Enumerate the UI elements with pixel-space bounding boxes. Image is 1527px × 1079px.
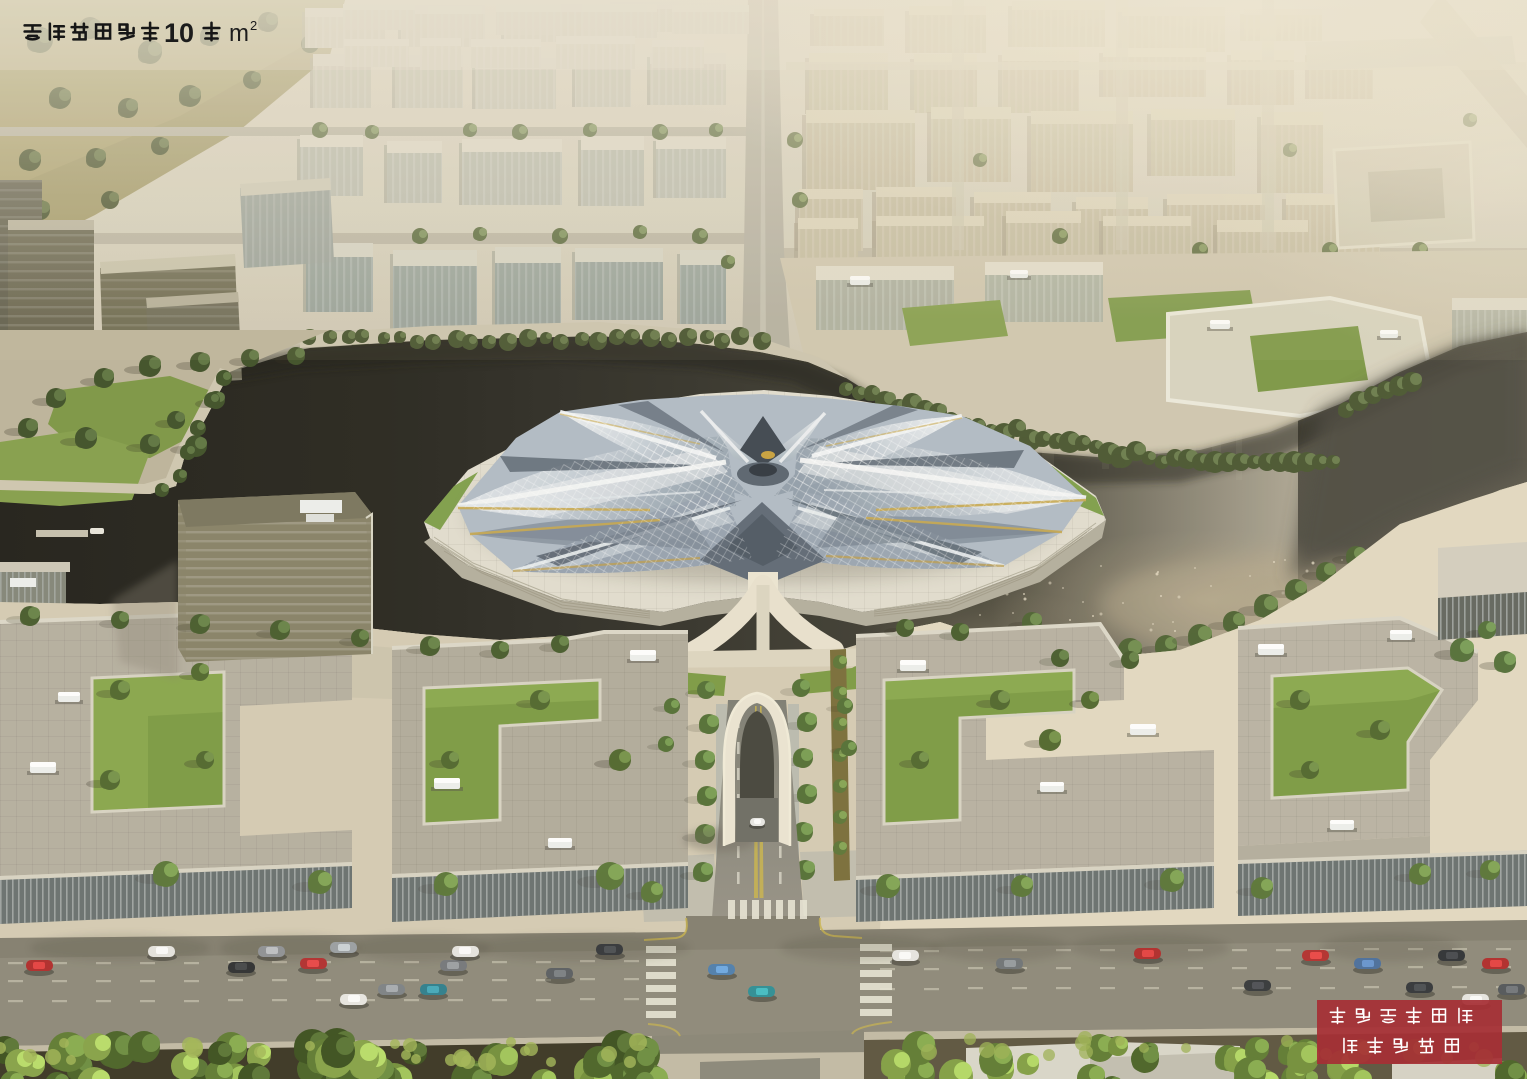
svg-text:m: m [229, 20, 249, 47]
svg-text:10: 10 [164, 18, 194, 48]
svg-text:2: 2 [250, 18, 257, 33]
